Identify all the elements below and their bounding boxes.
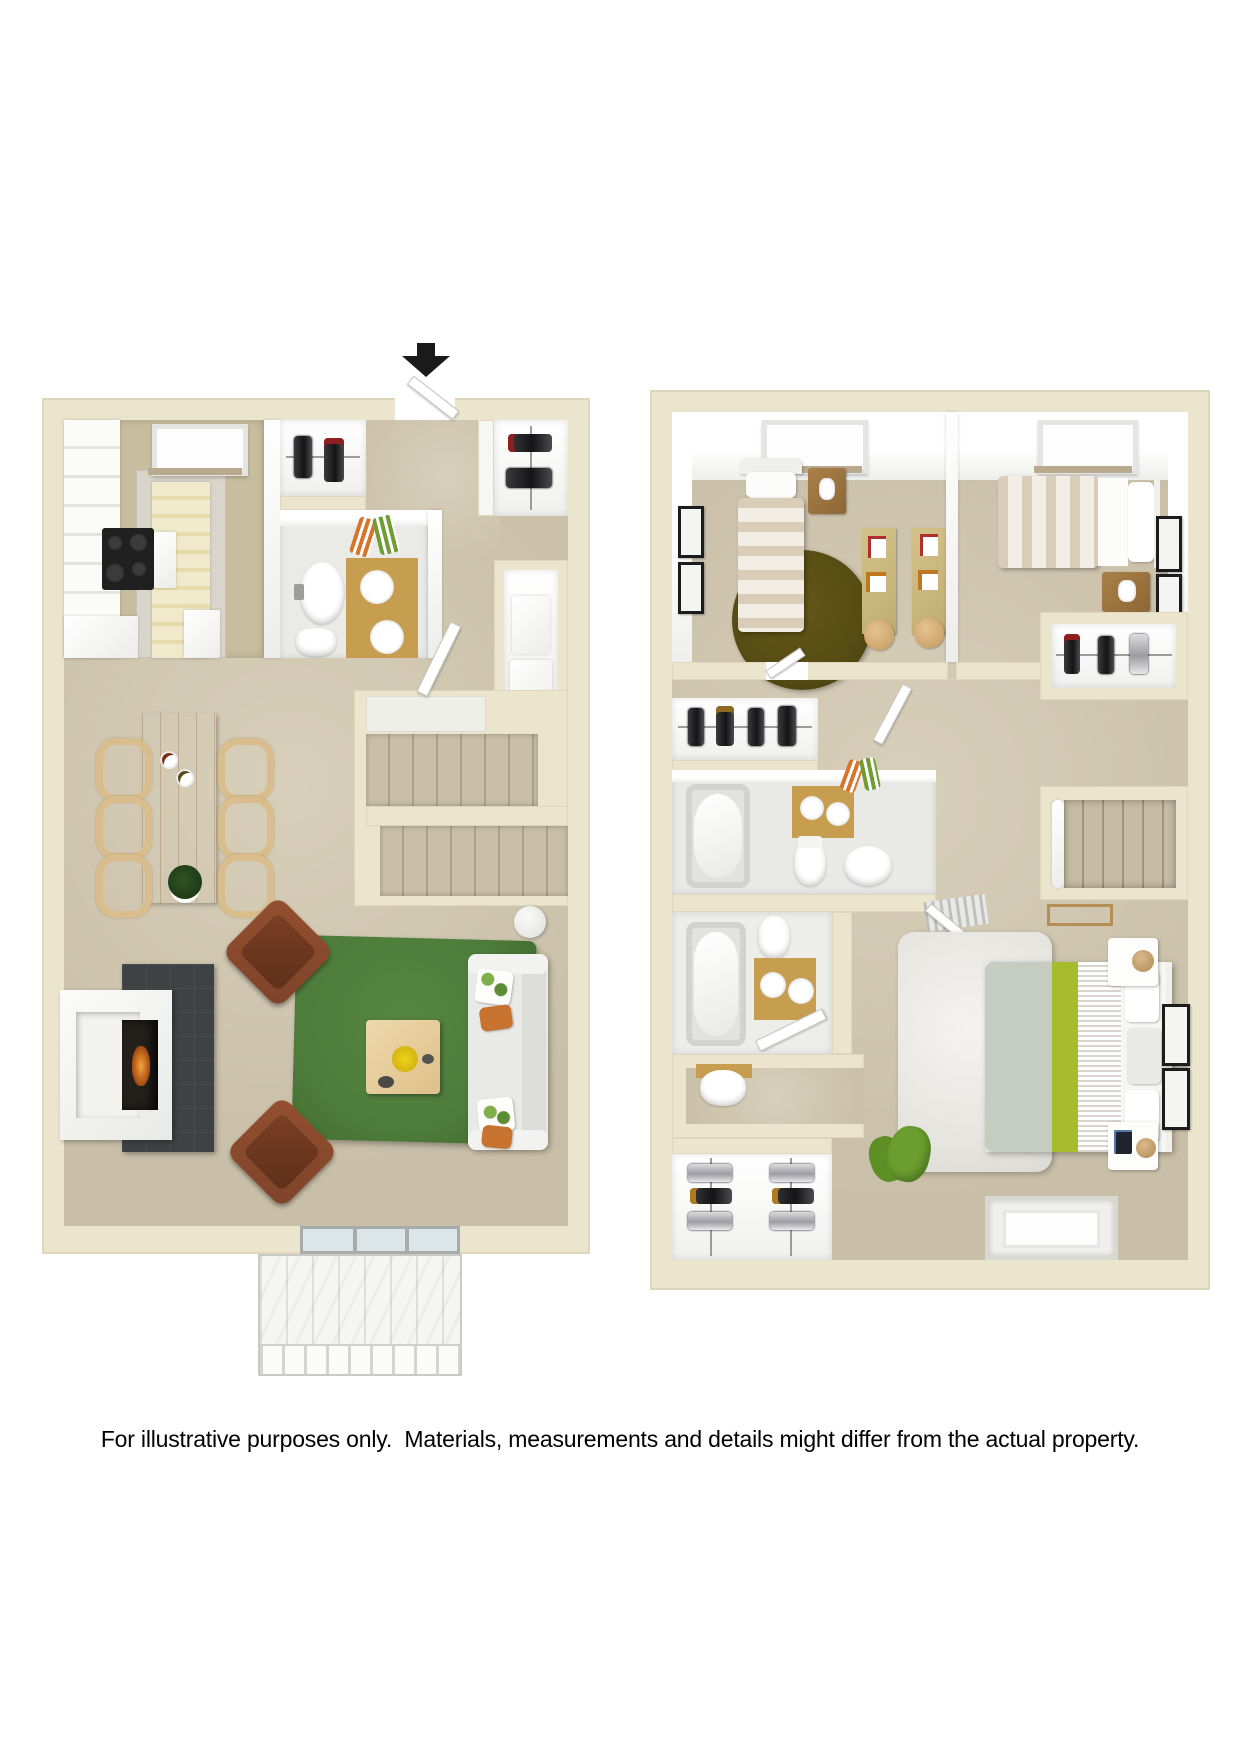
entry-closet	[280, 420, 366, 496]
stairwell	[1040, 786, 1188, 900]
disclaimer-caption: For illustrative purposes only. Material…	[0, 1426, 1240, 1453]
clothes-item	[508, 434, 552, 452]
bathroom-partition-wall	[428, 510, 442, 658]
clothes-item	[770, 1212, 814, 1230]
stove	[102, 528, 154, 590]
kitchen-window-sill	[148, 468, 242, 475]
bedroom2-wall-art	[1156, 516, 1182, 572]
clothes-item	[748, 708, 764, 746]
sink	[300, 562, 344, 624]
bedroom2-duvet	[998, 476, 1098, 568]
tablet	[1114, 1130, 1132, 1154]
master-wall-frame	[1047, 904, 1113, 926]
master-window	[985, 1196, 1118, 1260]
decor-stone	[422, 1054, 434, 1064]
bedroom2-stool	[914, 618, 944, 648]
kitchen-counter	[64, 616, 138, 658]
clothes-item	[506, 468, 552, 488]
clothes-item	[1098, 636, 1114, 674]
bedroom1-nightstand	[808, 468, 846, 514]
bedroom2-bed	[998, 476, 1160, 568]
linen-closet	[1040, 612, 1188, 700]
first-floor-plan	[42, 398, 590, 1254]
sofa	[468, 954, 548, 1150]
dining-table	[142, 713, 216, 903]
clothes-item	[324, 438, 344, 482]
closet-wall	[280, 496, 366, 510]
clothes-item	[1064, 634, 1080, 674]
side-table	[514, 906, 546, 938]
master-wall-art	[1162, 1068, 1190, 1130]
beanbag-chair	[870, 1126, 930, 1186]
bathtub	[686, 784, 750, 888]
bathroom1-sink	[844, 846, 892, 886]
dishwasher	[154, 532, 176, 588]
walkin-closet	[672, 1154, 832, 1260]
stair-landing-tile	[366, 696, 486, 732]
second-floor-plan	[650, 390, 1210, 1290]
coffee-table	[366, 1020, 440, 1094]
clothes-item	[688, 1164, 732, 1182]
bathroom-mat	[346, 558, 418, 658]
floorplan-image: For illustrative purposes only. Material…	[0, 0, 1240, 1754]
clothes-item	[716, 706, 734, 746]
stair-railing	[1052, 800, 1064, 888]
clothes-item	[770, 1164, 814, 1182]
orange-pillow	[481, 1124, 513, 1149]
bathroom1	[672, 770, 936, 894]
clothes-item	[778, 706, 796, 746]
master-nightstand	[1108, 1122, 1158, 1170]
water-heater	[512, 596, 550, 654]
entry-arrow-icon	[402, 343, 450, 377]
bedroom1-duvet	[738, 498, 804, 632]
coat-closet-wall	[478, 420, 494, 516]
bathroom2-wall	[832, 912, 852, 1054]
orange-pillow	[478, 1004, 513, 1032]
bathroom1-toilet	[794, 840, 826, 886]
deck-railing	[260, 1344, 460, 1374]
sliding-glass-door	[300, 1226, 460, 1254]
clothes-item	[690, 1188, 732, 1204]
stair-flight-upper	[366, 734, 538, 806]
bedroom2-nightstand	[1102, 572, 1150, 612]
decor-stone	[378, 1076, 394, 1088]
faucet	[294, 584, 304, 600]
master-nightstand	[1108, 938, 1158, 986]
table-plant	[168, 865, 202, 899]
hall-closet	[672, 698, 818, 760]
bedroom-divider-wall	[946, 412, 958, 662]
dining-chair	[218, 796, 274, 860]
bedroom2-skylight-sill	[1034, 466, 1132, 473]
clothes-item	[772, 1188, 814, 1204]
clothes-item	[1130, 634, 1148, 674]
bedroom1-wall-art	[678, 562, 704, 614]
leaf-pillow	[474, 968, 514, 1007]
refrigerator	[184, 610, 220, 658]
coat-closet	[494, 420, 568, 516]
dining-chair	[96, 796, 152, 860]
dining-chair	[96, 738, 152, 802]
half-bathroom	[280, 510, 428, 658]
dining-chair	[96, 854, 152, 918]
deck	[258, 1254, 462, 1376]
clothes-item	[688, 1212, 732, 1230]
stair-flight-down	[1064, 800, 1176, 888]
toilet	[296, 628, 336, 656]
bedroom1-wall	[672, 662, 948, 680]
water-closet	[672, 1054, 864, 1138]
fire-flame	[132, 1046, 150, 1086]
stair-flight-lower	[380, 826, 568, 896]
clothes-item	[294, 436, 312, 478]
fireplace-mantel	[60, 990, 172, 1140]
dining-chair	[218, 738, 274, 802]
yellow-plate	[392, 1046, 418, 1072]
bedroom1-bed	[738, 458, 804, 632]
bedroom1-stool	[864, 620, 894, 650]
bedroom1-desk	[862, 528, 896, 634]
bathroom2	[672, 912, 832, 1054]
kitchen	[64, 420, 264, 658]
fruit-plate	[160, 751, 178, 769]
bathroom1-wall	[672, 894, 936, 912]
bathroom2-tiles	[754, 958, 816, 1020]
wc-toilet	[700, 1070, 746, 1106]
clothes-item	[688, 708, 704, 746]
master-duvet-sage	[985, 962, 1058, 1152]
firebox	[122, 1020, 158, 1110]
bathroom1-mat	[792, 786, 854, 838]
walkin-closet-wall	[672, 1138, 832, 1154]
fruit-plate	[176, 769, 194, 787]
master-wall-art	[1162, 1004, 1190, 1066]
master-duvet-lime	[1052, 962, 1078, 1152]
bathtub	[686, 922, 746, 1046]
bedroom1-wall-art	[678, 506, 704, 558]
bathroom2-toilet	[758, 916, 790, 958]
kitchen-partition-wall	[264, 420, 280, 658]
staircase	[354, 690, 568, 906]
